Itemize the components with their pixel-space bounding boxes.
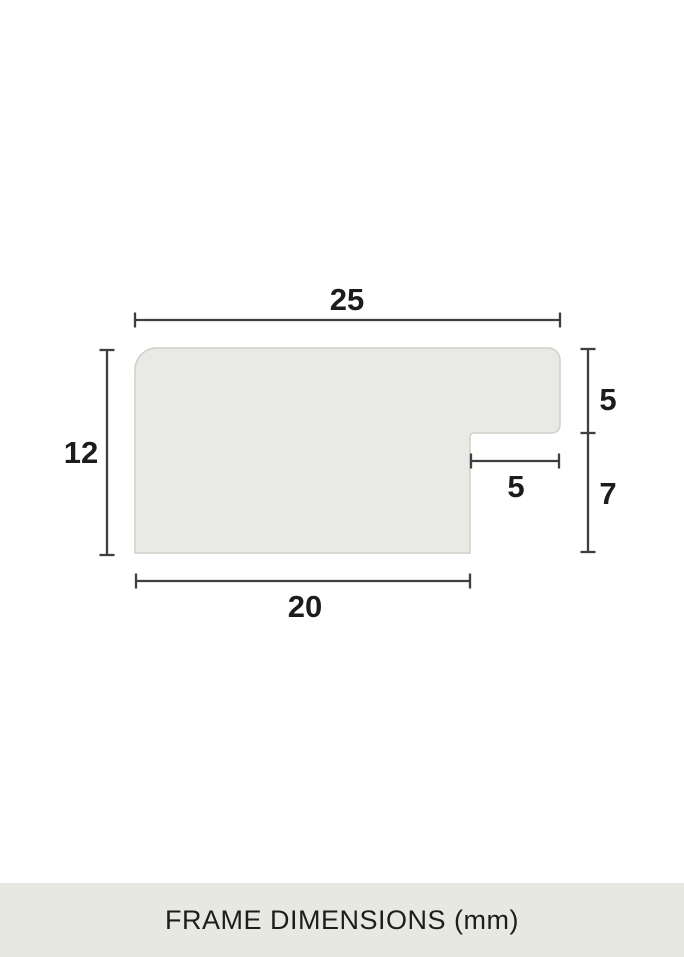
frame-profile-diagram: 25 12 5 7 5 20 [0,0,684,957]
rabbet-width-label: 5 [507,469,524,504]
frame-dimensions-page: 25 12 5 7 5 20 [0,0,684,957]
top-width-label: 25 [330,282,364,317]
right-height-dimension-line [581,349,596,552]
lower-right-height-label: 7 [599,476,616,511]
rabbet-width-dimension-line [471,454,559,469]
bottom-width-dimension-line [136,574,470,589]
frame-profile-shape [135,348,560,553]
bottom-width-label: 20 [288,589,322,624]
left-height-label: 12 [64,435,98,470]
rabbet-depth-label: 5 [599,382,616,417]
caption-text: FRAME DIMENSIONS (mm) [165,905,519,936]
caption-band: FRAME DIMENSIONS (mm) [0,883,684,957]
left-height-dimension-line [100,350,115,555]
